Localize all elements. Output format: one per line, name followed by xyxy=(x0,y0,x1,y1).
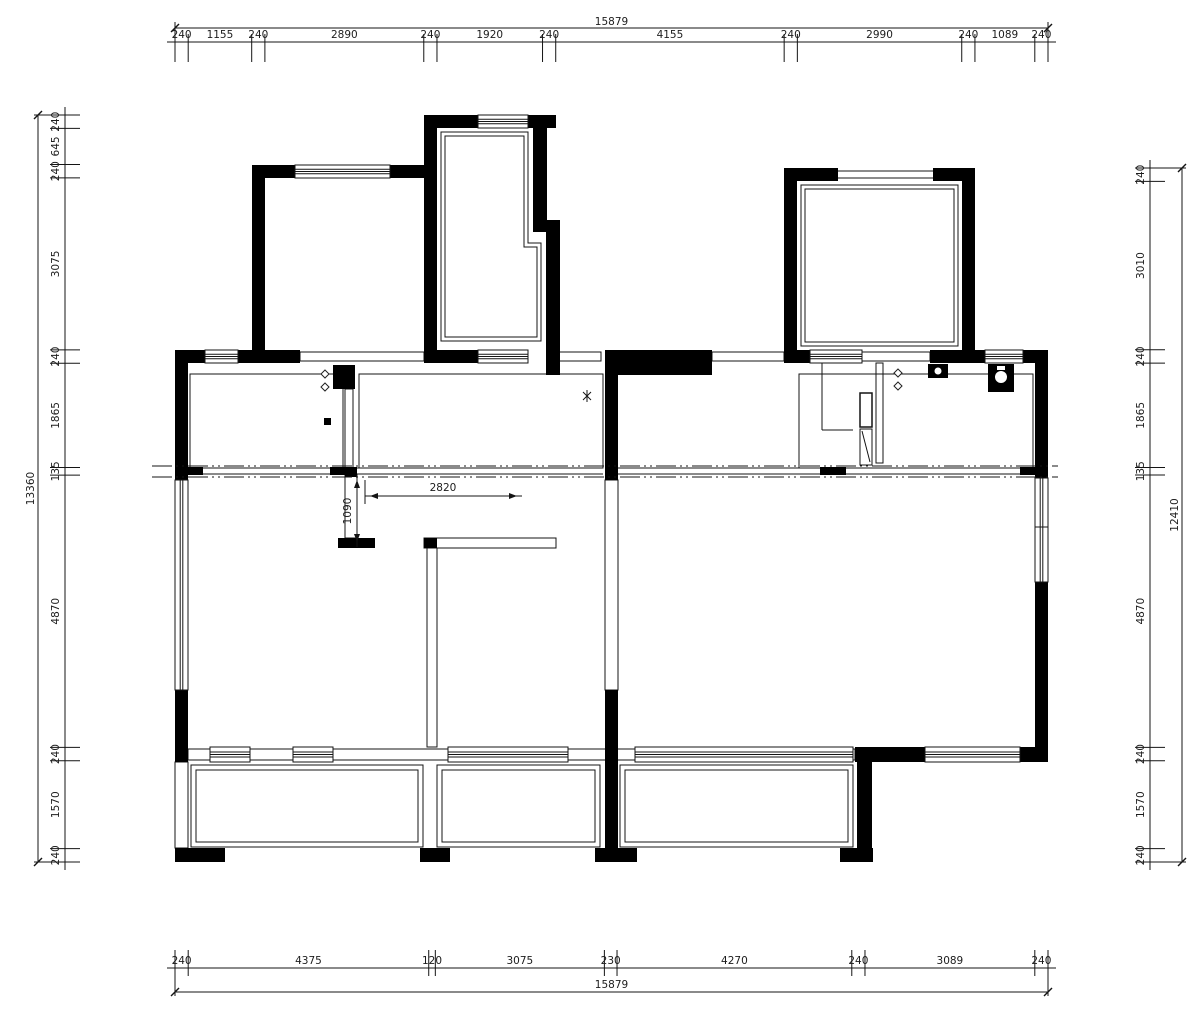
interior-dimension-layer: 28201090 xyxy=(342,475,522,547)
dim-label: 12410 xyxy=(1169,498,1181,531)
dim-label: 1089 xyxy=(992,29,1019,41)
dim-label: 1920 xyxy=(476,29,503,41)
fixtures-layer xyxy=(321,363,1007,465)
dim-label: 15879 xyxy=(595,979,628,991)
dim-label: 2890 xyxy=(331,29,358,41)
dim-label: 240 xyxy=(1135,346,1147,366)
dim-label: 3075 xyxy=(506,955,533,967)
dim-label: 135 xyxy=(50,461,62,481)
floor-plan-canvas: 2401155240289024019202404155240299024010… xyxy=(0,0,1200,1009)
dim-label: 230 xyxy=(601,955,621,967)
dim-label: 1865 xyxy=(1135,402,1147,429)
diamond-marker xyxy=(894,369,902,377)
dim-label: 1570 xyxy=(50,791,62,818)
diamond-marker xyxy=(894,382,902,390)
dim-label: 4375 xyxy=(295,955,322,967)
dim-label: 240 xyxy=(781,29,801,41)
dim-label: 3010 xyxy=(1135,252,1147,279)
dim-label: 240 xyxy=(50,161,62,181)
dim-label: 135 xyxy=(1135,461,1147,481)
dim-label: 2820 xyxy=(430,482,457,494)
dim-label: 240 xyxy=(50,347,62,367)
dim-label: 240 xyxy=(248,29,268,41)
dim-label: 1090 xyxy=(342,498,354,525)
dim-label: 2990 xyxy=(866,29,893,41)
dim-label: 240 xyxy=(958,29,978,41)
diamond-marker xyxy=(321,383,329,391)
dim-label: 1570 xyxy=(1135,791,1147,818)
dim-label: 3075 xyxy=(50,251,62,278)
dim-label: 240 xyxy=(848,955,868,967)
dim-label: 240 xyxy=(1135,744,1147,764)
sink-fixture xyxy=(935,368,942,375)
dim-label: 240 xyxy=(420,29,440,41)
partition-walls-layer xyxy=(175,132,1033,848)
dim-label: 4870 xyxy=(1135,598,1147,625)
dim-label: 240 xyxy=(539,29,559,41)
dim-label: 120 xyxy=(422,955,442,967)
dim-label: 13360 xyxy=(25,472,37,505)
dim-label: 645 xyxy=(50,136,62,156)
toilet-fixture xyxy=(995,371,1007,383)
floor-plan-svg: 2401155240289024019202404155240299024010… xyxy=(0,0,1200,1009)
dim-label: 4270 xyxy=(721,955,748,967)
diamond-marker xyxy=(321,370,329,378)
dim-label: 15879 xyxy=(595,16,628,28)
dim-label: 4155 xyxy=(657,29,684,41)
dim-label: 1155 xyxy=(207,29,234,41)
dim-label: 240 xyxy=(50,744,62,764)
dim-label: 1865 xyxy=(50,402,62,429)
dim-label: 3089 xyxy=(937,955,964,967)
dim-label: 4870 xyxy=(50,598,62,625)
